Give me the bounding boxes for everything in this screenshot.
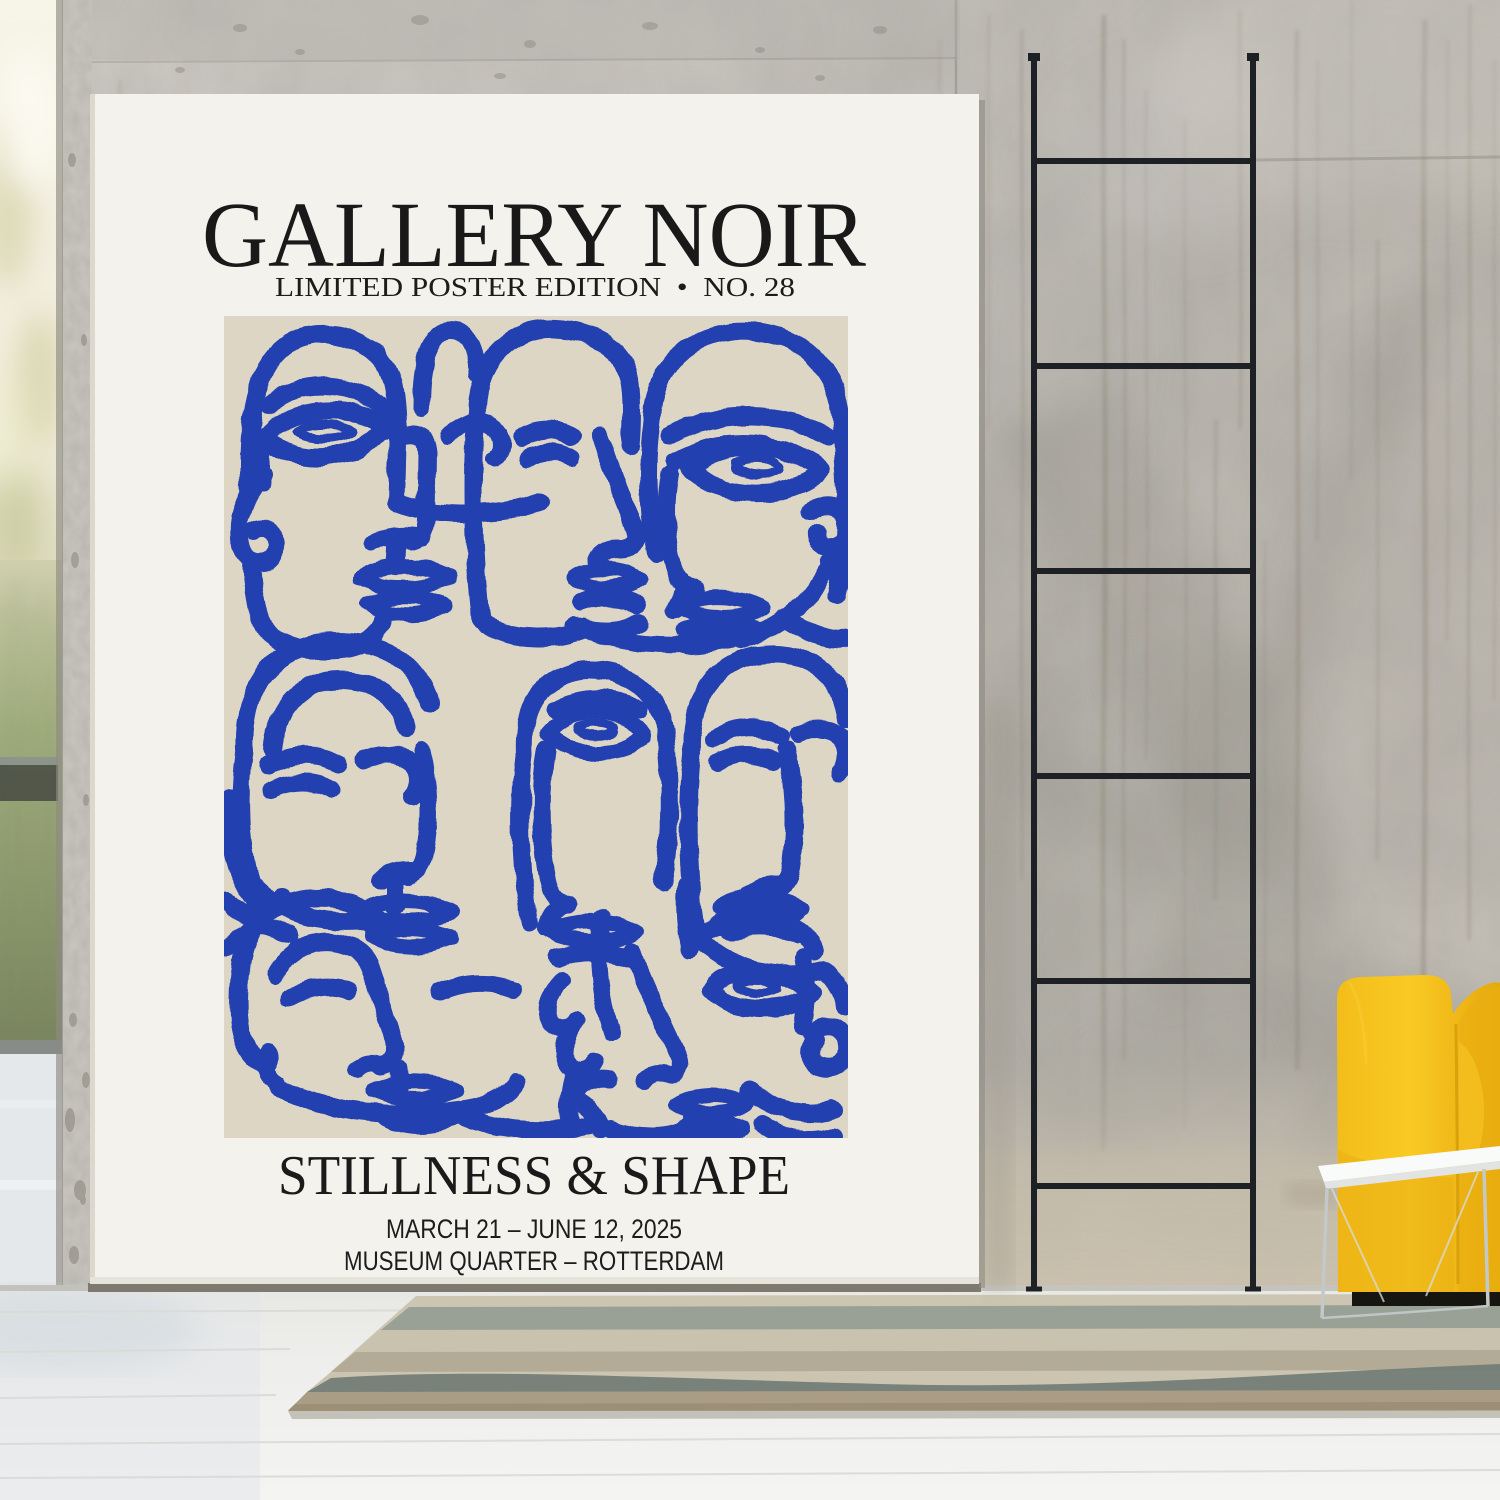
svg-text:LIMITED POSTER EDITION • NO.: LIMITED POSTER EDITION • NO. 28: [275, 272, 795, 302]
svg-text:MARCH 21 – JUNE 12, 2025: MARCH 21 – JUNE 12, 2025: [386, 1214, 682, 1244]
svg-text:MUSEUM QUARTER – ROTTERDAM: MUSEUM QUARTER – ROTTERDAM: [344, 1246, 724, 1276]
svg-text:STILLNESS & SHAPE: STILLNESS & SHAPE: [278, 1145, 790, 1207]
